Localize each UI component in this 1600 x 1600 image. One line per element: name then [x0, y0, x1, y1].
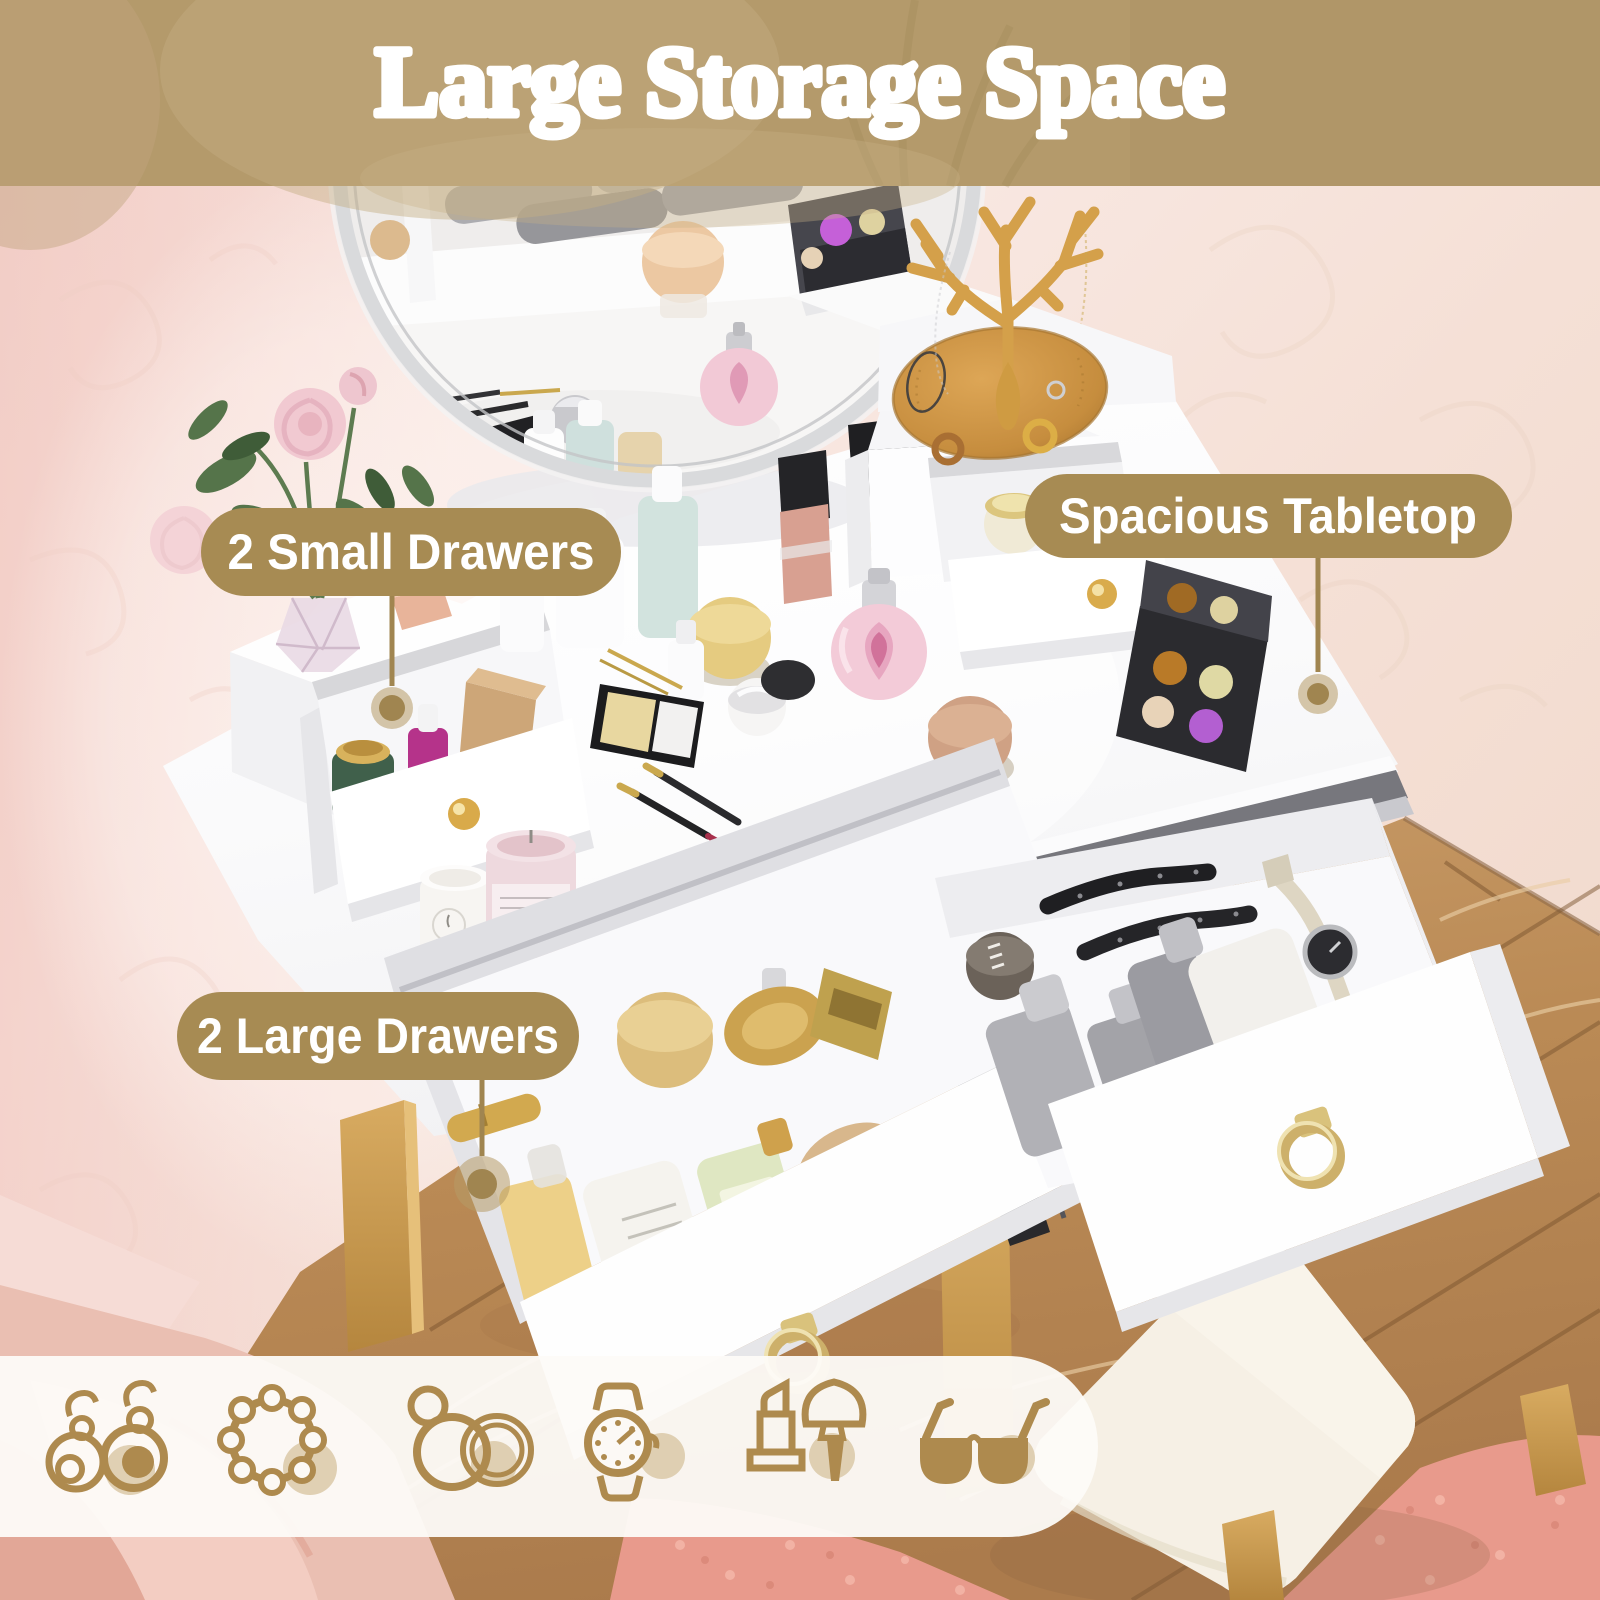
svg-text:Spacious Tabletop: Spacious Tabletop — [1059, 488, 1477, 544]
svg-text:2 Small Drawers: 2 Small Drawers — [228, 524, 595, 580]
svg-text:Large Storage Space: Large Storage Space — [375, 26, 1225, 137]
svg-text:2 Large Drawers: 2 Large Drawers — [197, 1008, 559, 1064]
